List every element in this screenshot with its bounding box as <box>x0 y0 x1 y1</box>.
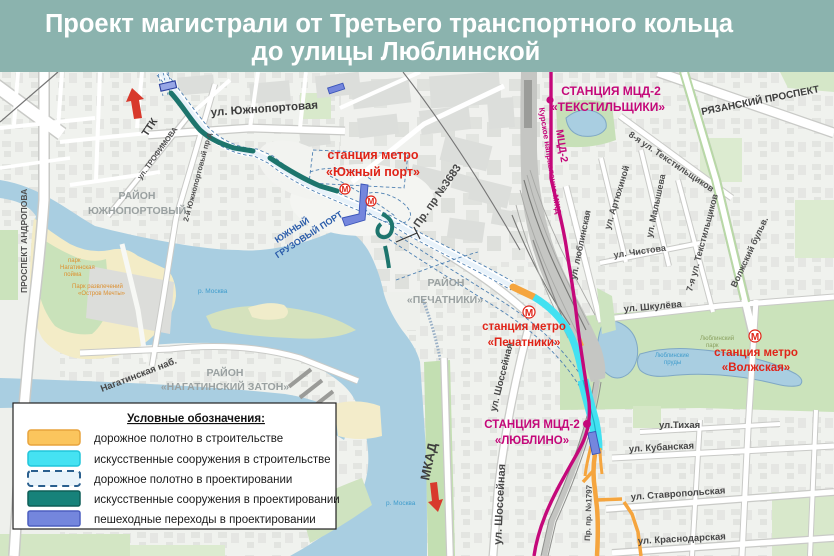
svg-text:Нагатинская: Нагатинская <box>60 265 95 271</box>
svg-text:«НАГАТИНСКИЙ ЗАТОН»: «НАГАТИНСКИЙ ЗАТОН» <box>161 380 289 393</box>
svg-text:РАЙОН: РАЙОН <box>207 366 244 379</box>
svg-text:«Печатники»: «Печатники» <box>488 337 561 349</box>
svg-text:«Южный порт»: «Южный порт» <box>326 165 420 179</box>
svg-text:ПРОСПЕКТ АНДРОПОВА: ПРОСПЕКТ АНДРОПОВА <box>19 189 29 293</box>
svg-text:«ЛЮБЛИНО»: «ЛЮБЛИНО» <box>495 435 569 447</box>
svg-text:станция метро: станция метро <box>482 321 566 333</box>
svg-text:станция метро: станция метро <box>327 148 419 162</box>
svg-text:Люблинские: Люблинские <box>655 353 690 359</box>
svg-text:«Остров Мечты»: «Остров Мечты» <box>78 291 126 297</box>
svg-text:«Волжская»: «Волжская» <box>722 362 790 374</box>
svg-text:до улицы Люблинской: до улицы Люблинской <box>252 38 541 66</box>
svg-text:М: М <box>525 308 533 319</box>
svg-text:дорожное полотно в проектирова: дорожное полотно в проектировании <box>94 474 292 486</box>
svg-text:дорожное полотно в строительст: дорожное полотно в строительстве <box>94 433 283 445</box>
svg-text:Люблинский: Люблинский <box>700 335 734 342</box>
svg-text:Парк развлечений: Парк развлечений <box>72 283 123 290</box>
svg-text:пойма: пойма <box>64 271 82 278</box>
svg-text:М: М <box>368 197 375 206</box>
svg-text:Проект магистрали от Третьего: Проект магистрали от Третьего транспортн… <box>45 10 734 38</box>
svg-text:р. Москва: р. Москва <box>198 288 228 295</box>
svg-text:ул.Тихая: ул.Тихая <box>659 420 700 431</box>
svg-text:парк: парк <box>68 258 81 264</box>
svg-text:пешеходные переходы в проектир: пешеходные переходы в проектировании <box>94 514 316 526</box>
svg-text:«ПЕЧАТНИКИ»: «ПЕЧАТНИКИ» <box>407 294 483 306</box>
svg-text:М: М <box>751 332 759 343</box>
svg-text:Условные обозначения:: Условные обозначения: <box>127 413 265 425</box>
svg-text:искусственные сооружения в стр: искусственные сооружения в строительстве <box>94 454 331 466</box>
svg-text:«ТЕКСТИЛЬЩИКИ»: «ТЕКСТИЛЬЩИКИ» <box>551 100 665 114</box>
svg-text:станция метро: станция метро <box>714 347 798 359</box>
svg-text:СТАНЦИЯ МЦД-2: СТАНЦИЯ МЦД-2 <box>484 419 579 431</box>
svg-text:пруды: пруды <box>664 360 681 366</box>
svg-text:РАЙОН: РАЙОН <box>428 276 465 289</box>
svg-text:М: М <box>342 185 349 194</box>
svg-text:РАЙОН: РАЙОН <box>119 189 156 202</box>
svg-text:СТАНЦИЯ МЦД-2: СТАНЦИЯ МЦД-2 <box>561 84 661 98</box>
svg-text:р. Москва: р. Москва <box>386 500 416 507</box>
svg-text:ЮЖНОПОРТОВЫЙ: ЮЖНОПОРТОВЫЙ <box>88 204 186 217</box>
svg-text:искусственные сооружения в про: искусственные сооружения в проектировани… <box>94 494 340 506</box>
